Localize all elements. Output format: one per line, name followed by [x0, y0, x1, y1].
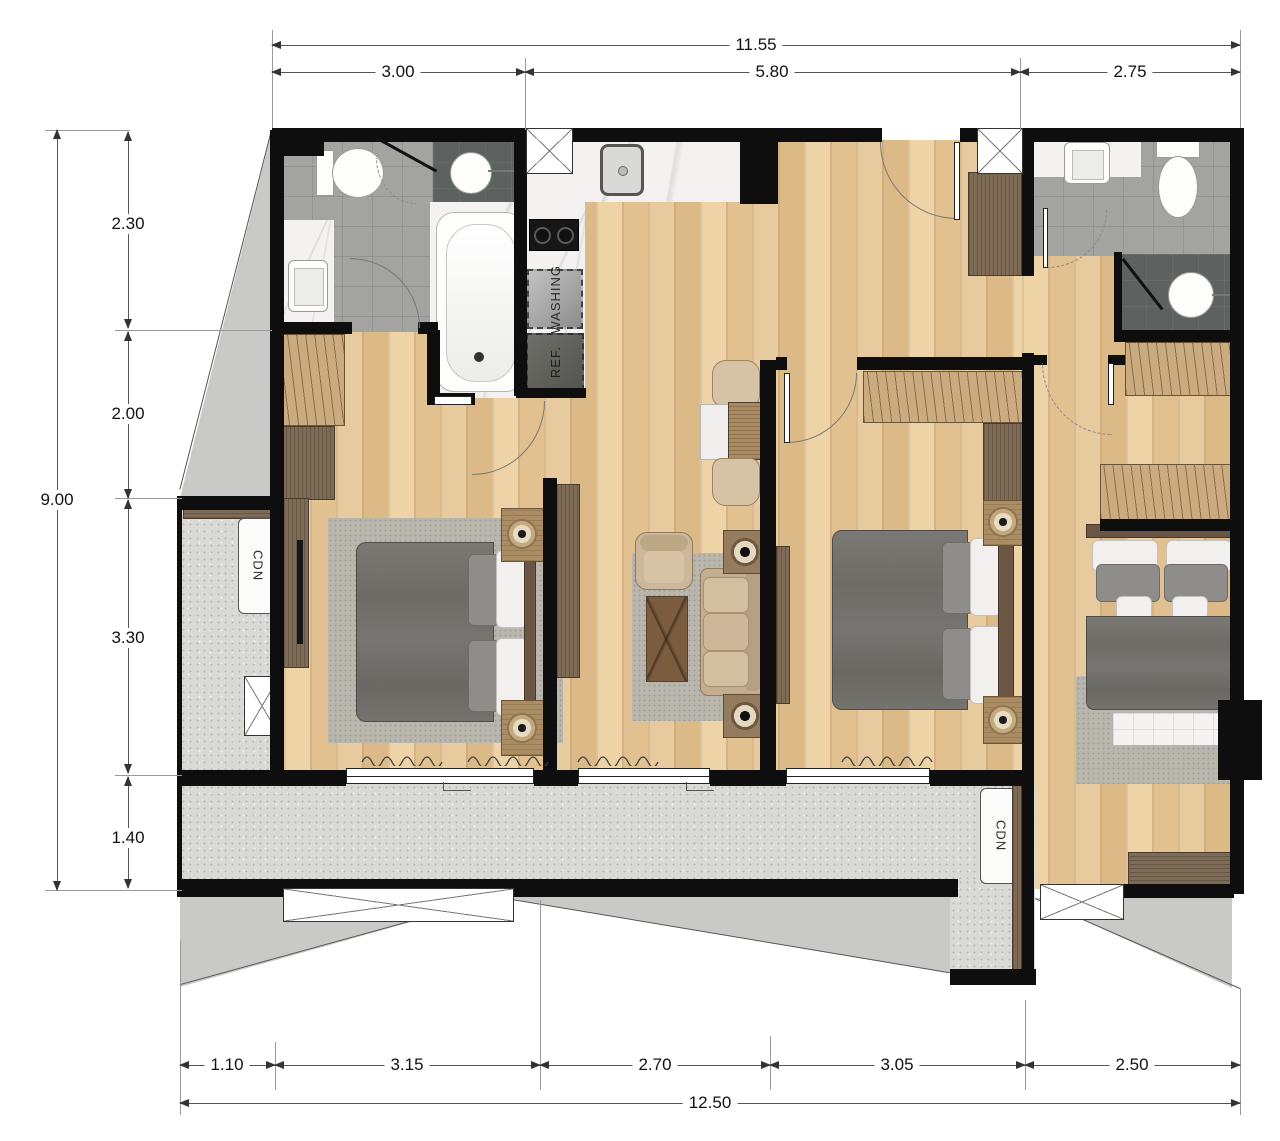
wall-north — [272, 128, 882, 142]
shower2-head-icon — [1168, 272, 1214, 318]
extension-line — [1240, 988, 1241, 1115]
bedroom1-bed — [356, 542, 536, 722]
window-bedroom3-balcony — [1040, 884, 1124, 920]
wall-partition-living-bedroom2 — [760, 360, 776, 778]
bed3-blanket — [1086, 616, 1236, 710]
dim-label-top-seg: 3.00 — [375, 62, 420, 82]
bedroom1-lamp-icon — [506, 518, 538, 550]
washing-machine: WASHING — [527, 269, 583, 329]
wall-south — [710, 770, 786, 786]
washing-machine-label: WASHING — [548, 265, 563, 334]
bedroom2-wardrobe — [863, 371, 1023, 423]
bedroom1-tv-console — [283, 498, 309, 668]
balcony-floor — [180, 784, 1035, 881]
wall-bath1-south — [284, 322, 352, 334]
shaft-icon — [977, 128, 1023, 174]
living-sideboard — [556, 484, 580, 678]
bedroom2-lamp-icon — [987, 704, 1019, 736]
toilet2-bowl — [1158, 156, 1198, 218]
bedroom3-wardrobe-top — [1125, 342, 1235, 396]
bedroom1-tv — [297, 540, 303, 644]
dim-label-left-seg: 2.00 — [105, 404, 150, 424]
refrigerator: REF. — [526, 333, 584, 391]
bedroom2-tv-console — [776, 546, 790, 704]
wall-corner-nw — [284, 142, 324, 156]
vanity2-basin — [1072, 150, 1104, 180]
curtain-squiggle — [360, 750, 450, 766]
wall-south — [930, 770, 1034, 786]
dim-label-left-seg: 2.30 — [105, 214, 150, 234]
dim-label-top-seg: 2.75 — [1107, 62, 1152, 82]
wall-entry-pillar — [740, 128, 778, 204]
dim-label-bottom-seg: 3.15 — [384, 1055, 429, 1075]
wall-west — [270, 130, 284, 780]
wall-balcony-west — [177, 498, 182, 897]
wall-bedroom3-south — [1118, 884, 1234, 898]
window-bedroom1 — [346, 768, 534, 784]
wall-bedroom3-mid — [1100, 519, 1240, 531]
wall-bedroom2-north — [857, 357, 1022, 370]
shoe-cabinet — [968, 172, 1022, 276]
bedroom1-wardrobe — [279, 334, 345, 426]
wall-east-corridor — [1022, 128, 1034, 276]
condenser-right-label: CDN — [994, 820, 1009, 851]
extension-line — [180, 940, 181, 1115]
bedroom3-wardrobe-mid — [1100, 464, 1235, 521]
kitchen-sink-drain-icon — [618, 166, 628, 176]
wall-shower2-west — [1114, 252, 1122, 342]
extension-line — [45, 890, 182, 891]
dim-label-top-overall: 11.55 — [729, 35, 782, 55]
wall-south — [180, 770, 346, 786]
bedroom1-door-leaf — [434, 396, 472, 405]
wall-nook-west — [427, 330, 440, 400]
door-swing-tick — [443, 782, 471, 791]
bedroom2-column — [983, 423, 1023, 505]
balcony-vent-box — [283, 888, 514, 922]
extension-line — [1025, 1000, 1026, 1090]
balcony-wood-screen — [1012, 780, 1022, 973]
armchair — [635, 532, 693, 590]
wall-bedroom1-east — [543, 478, 557, 778]
bedroom3-bench — [1112, 712, 1234, 746]
shaft-icon — [526, 128, 573, 174]
floor-plan: WASHING REF. — [0, 0, 1280, 1141]
bed1-headboard — [524, 538, 536, 726]
bedroom2-bed — [832, 530, 1014, 710]
curtain-squiggle — [466, 750, 556, 766]
column-east — [1218, 700, 1262, 780]
dim-label-left-seg: 1.40 — [105, 828, 150, 848]
bathtub-drain-icon — [474, 352, 484, 362]
sofa — [700, 568, 764, 696]
bed2-headboard — [998, 528, 1014, 712]
dim-label-bottom-seg: 2.70 — [632, 1055, 677, 1075]
dim-label-left-seg: 3.30 — [105, 628, 150, 648]
exterior-slope-left — [180, 130, 272, 498]
bedroom2-lamp-icon — [987, 506, 1019, 538]
dim-label-bottom-seg: 1.10 — [204, 1055, 249, 1075]
dim-line-left-overall — [57, 130, 58, 890]
bedroom3-console — [1128, 852, 1236, 886]
coffee-runner — [646, 596, 688, 682]
dim-label-bottom-seg: 3.05 — [874, 1055, 919, 1075]
wall-south — [534, 770, 578, 786]
curtain-squiggle — [840, 750, 936, 766]
wall-tongue-south — [950, 969, 1036, 985]
wall-kitchen-stub — [516, 388, 586, 398]
dining-table — [700, 402, 762, 460]
bedroom3-door-leaf — [1108, 363, 1114, 405]
condenser-left-label: CDN — [251, 550, 266, 581]
entrance-door-leaf — [954, 142, 960, 220]
dining-chair — [712, 360, 760, 406]
door-swing-tick — [686, 782, 714, 791]
wall-bedroom2-north — [776, 357, 787, 370]
bedroom3-bed — [1086, 524, 1236, 710]
toilet1-bowl — [332, 148, 384, 198]
curtain-squiggle — [576, 750, 666, 766]
cooktop — [529, 219, 579, 251]
dim-label-left-overall: 9.00 — [34, 490, 79, 510]
dining-chair — [712, 458, 760, 506]
refrigerator-label: REF. — [548, 346, 563, 378]
shower1-head-icon — [450, 152, 492, 194]
window-bedroom2 — [786, 768, 930, 784]
bedroom1-lamp-icon — [506, 712, 538, 744]
wall-balcony-arm — [177, 496, 277, 510]
dim-label-top-seg: 5.80 — [749, 62, 794, 82]
wall-bedroom3-north — [1118, 330, 1240, 342]
bedroom1-dresser — [281, 426, 335, 500]
wall-east-corridor — [1022, 353, 1034, 985]
bathroom2-door-leaf — [1043, 208, 1048, 268]
dim-label-bottom-seg: 2.50 — [1109, 1055, 1154, 1075]
dim-label-bottom-overall: 12.50 — [683, 1093, 738, 1113]
bedroom2-door-leaf — [784, 373, 790, 443]
extension-line — [115, 330, 272, 331]
vanity1-basin — [294, 268, 324, 306]
